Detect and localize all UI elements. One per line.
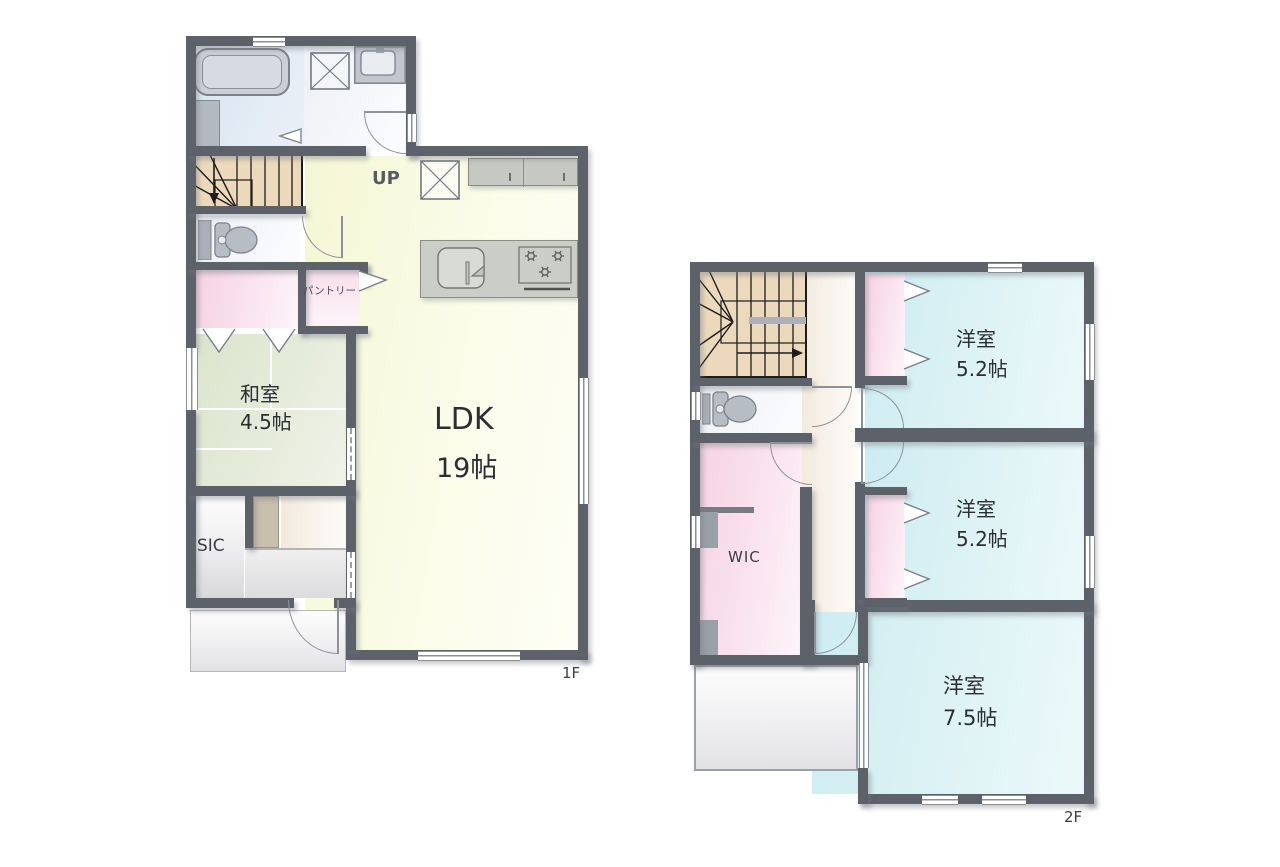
door-leaf (337, 600, 339, 654)
stairs-1f (187, 152, 303, 211)
west-room2-name: 洋室 (956, 493, 996, 522)
wall (855, 428, 1094, 442)
floor-plan-canvas: UP パントリー 和室 4.5帖 LDK 19帖 SIC 1F (0, 0, 1280, 867)
closet-door-mark (903, 280, 931, 302)
pantry-door-mark (358, 270, 388, 292)
ldk-name: LDK (434, 402, 494, 437)
window (859, 663, 869, 768)
west-room2-size: 5.2帖 (956, 523, 1008, 552)
wall (863, 487, 907, 495)
window (988, 263, 1022, 273)
wall (800, 487, 812, 600)
stairs-up-label: UP (372, 168, 400, 189)
toilet-icon (702, 390, 758, 428)
wall (690, 655, 860, 665)
pantry-floor (306, 270, 360, 326)
closet-1f-floor (196, 270, 298, 328)
wall (690, 262, 1094, 272)
washing-machine-icon (310, 52, 350, 90)
window (922, 795, 958, 805)
window (253, 37, 285, 47)
ldk-size: 19帖 (436, 446, 497, 485)
window (691, 516, 701, 548)
wall (186, 146, 366, 156)
sic-label: SIC (197, 536, 225, 556)
door-leaf (341, 216, 343, 258)
floor-tag-1f: 1F (562, 664, 580, 682)
closet-west2-floor (867, 495, 905, 598)
genkan-floor (245, 550, 346, 598)
closet-door-mark (903, 348, 931, 370)
stairs-2f (693, 265, 807, 378)
kitchen-wall-cabinet (468, 158, 578, 186)
closet-door-mark (202, 328, 236, 354)
wall (690, 378, 812, 386)
window (579, 378, 589, 504)
wall (690, 272, 700, 665)
shoe-cabinet (253, 496, 279, 548)
door-leaf (812, 386, 852, 388)
wall (861, 376, 907, 385)
wall (186, 598, 294, 608)
bath-sliding-door-icon (278, 128, 302, 144)
wall (245, 496, 253, 548)
toilet-icon (198, 220, 260, 260)
wall (858, 794, 1094, 804)
wall (855, 272, 865, 388)
window (407, 114, 417, 142)
open-sliding-door (347, 552, 355, 598)
closet-west1-floor (865, 274, 905, 376)
kitchen-sink-icon (436, 246, 494, 292)
window (1085, 536, 1095, 588)
door-leaf (770, 442, 812, 444)
genkan-step-line (245, 548, 346, 550)
closet-door-mark (903, 568, 931, 590)
wall (863, 598, 907, 607)
wall (186, 262, 368, 270)
wic-hanger (700, 512, 718, 548)
vanity-sink-icon (354, 46, 406, 84)
wic-hanger (700, 620, 718, 655)
wall (858, 768, 868, 804)
tatami-line (196, 448, 272, 450)
wall (186, 206, 306, 214)
door-leaf (814, 612, 816, 654)
bath-counter (192, 100, 220, 148)
washitsu-size: 4.5帖 (240, 406, 292, 435)
door-leaf (861, 442, 863, 484)
west-room3-size: 7.5帖 (943, 702, 997, 732)
closet-door-mark (262, 328, 296, 354)
wall (186, 410, 196, 600)
wall (186, 36, 416, 46)
door-leaf (364, 111, 406, 113)
west-room1-size: 5.2帖 (956, 353, 1008, 382)
balcony (694, 665, 858, 771)
washitsu-name: 和室 (240, 378, 280, 407)
stove-icon (518, 246, 572, 292)
sliding-window (418, 651, 520, 661)
floor-tag-2f: 2F (1064, 808, 1082, 826)
refrigerator-icon (420, 160, 460, 200)
wall (186, 486, 356, 496)
window (1085, 324, 1095, 380)
wall (298, 326, 368, 334)
closet-door-mark (903, 502, 931, 524)
window (982, 795, 1026, 805)
wall (186, 46, 196, 348)
pantry-label: パントリー (303, 283, 356, 298)
open-sliding-door (347, 428, 355, 480)
wall (406, 146, 588, 156)
window (186, 348, 198, 410)
door-leaf (861, 388, 863, 428)
west-room3-name: 洋室 (943, 670, 985, 700)
wall (855, 482, 865, 600)
window (691, 392, 701, 420)
west-room1-name: 洋室 (956, 323, 996, 352)
wall (858, 612, 868, 663)
bathtub-icon (194, 48, 290, 96)
wic-label: WIC (728, 548, 761, 566)
entry-hall-floor (281, 496, 346, 548)
